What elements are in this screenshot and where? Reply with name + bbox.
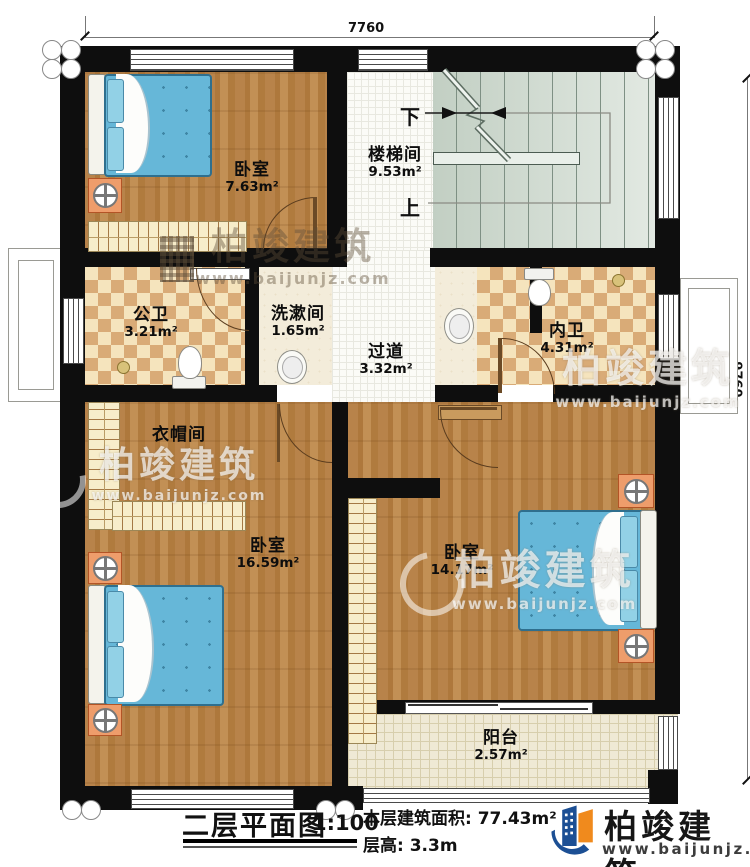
room-label-washroom: 洗漱间 1.65m² xyxy=(258,305,338,339)
bed-pillow xyxy=(620,570,638,622)
table-lamp xyxy=(93,556,118,581)
room-label-bedroom-top: 卧室 7.63m² xyxy=(212,161,292,195)
room-label-balcony: 阳台 2.57m² xyxy=(462,729,540,763)
title-underline-thin xyxy=(183,846,357,848)
dimension-top-value: 7760 xyxy=(348,21,384,36)
sliding-door-leaf xyxy=(500,708,588,710)
sliding-door-leaf xyxy=(408,704,498,706)
floor-plan-canvas: 7760 9760 xyxy=(0,0,750,867)
door-leaf xyxy=(313,197,317,248)
floor-area-text: 本层建筑面积: 77.43m² xyxy=(363,804,557,829)
wall-hallway-end xyxy=(332,478,440,498)
wardrobe xyxy=(112,501,246,531)
wall-ensuite-south-b xyxy=(553,385,655,402)
floor-height-text: 层高: 3.3m xyxy=(363,831,458,856)
corner-columns xyxy=(636,40,674,78)
floor-drain xyxy=(117,361,130,374)
bed-pillow xyxy=(107,591,124,643)
balcony-corner-column xyxy=(648,770,678,804)
dimension-line-right xyxy=(747,78,748,780)
wardrobe xyxy=(88,221,247,252)
window-top-left xyxy=(130,49,294,71)
room-label-public-bath: 公卫 3.21m² xyxy=(112,306,190,340)
bed-pillow xyxy=(107,127,124,171)
room-label-hallway: 过道 3.32m² xyxy=(348,343,424,377)
plan-title: 二层平面图 xyxy=(182,804,327,843)
sink-basin xyxy=(449,314,469,338)
room-label-bedroom-left: 卧室 16.59m² xyxy=(222,537,314,571)
brand-logo-icon xyxy=(546,799,600,857)
corner-columns xyxy=(42,40,80,78)
table-lamp xyxy=(624,634,649,659)
washroom-sink xyxy=(277,350,307,384)
left-bay-outline-inner xyxy=(18,260,54,390)
wardrobe xyxy=(348,498,377,744)
floor-drain xyxy=(612,274,625,287)
room-label-ensuite-bath: 内卫 4.31m² xyxy=(528,322,606,356)
wall-ensuite-south-a xyxy=(435,385,498,402)
dimension-line-top xyxy=(85,37,655,38)
room-label-stairwell: 楼梯间 9.53m² xyxy=(352,146,438,180)
bed-pillow xyxy=(620,516,638,568)
brand-website: www.baijunjz.com xyxy=(602,840,750,858)
window-right-ensuite xyxy=(658,294,679,359)
bed-pillow xyxy=(107,646,124,698)
corner-columns xyxy=(62,800,100,818)
table-lamp xyxy=(93,183,118,208)
window-left xyxy=(63,298,84,364)
ensuite-sink xyxy=(444,308,474,344)
table-lamp xyxy=(93,708,118,733)
stair-up-label: 上 xyxy=(400,192,420,221)
wall-left xyxy=(60,46,85,786)
title-underline-thick xyxy=(183,839,357,843)
balcony-railing-right xyxy=(658,716,678,770)
stair-down-label: 下 xyxy=(400,101,420,130)
wall-bedrooms-divider xyxy=(332,402,348,786)
room-label-cloakroom: 衣帽间 xyxy=(138,426,220,445)
bed-pillow xyxy=(107,79,124,123)
toilet-bowl xyxy=(528,279,551,306)
table-lamp xyxy=(624,479,649,504)
toilet-bowl xyxy=(178,346,202,379)
sink-basin xyxy=(282,356,302,379)
right-bay-outline-inner xyxy=(688,288,730,404)
bed-headboard xyxy=(640,510,657,629)
